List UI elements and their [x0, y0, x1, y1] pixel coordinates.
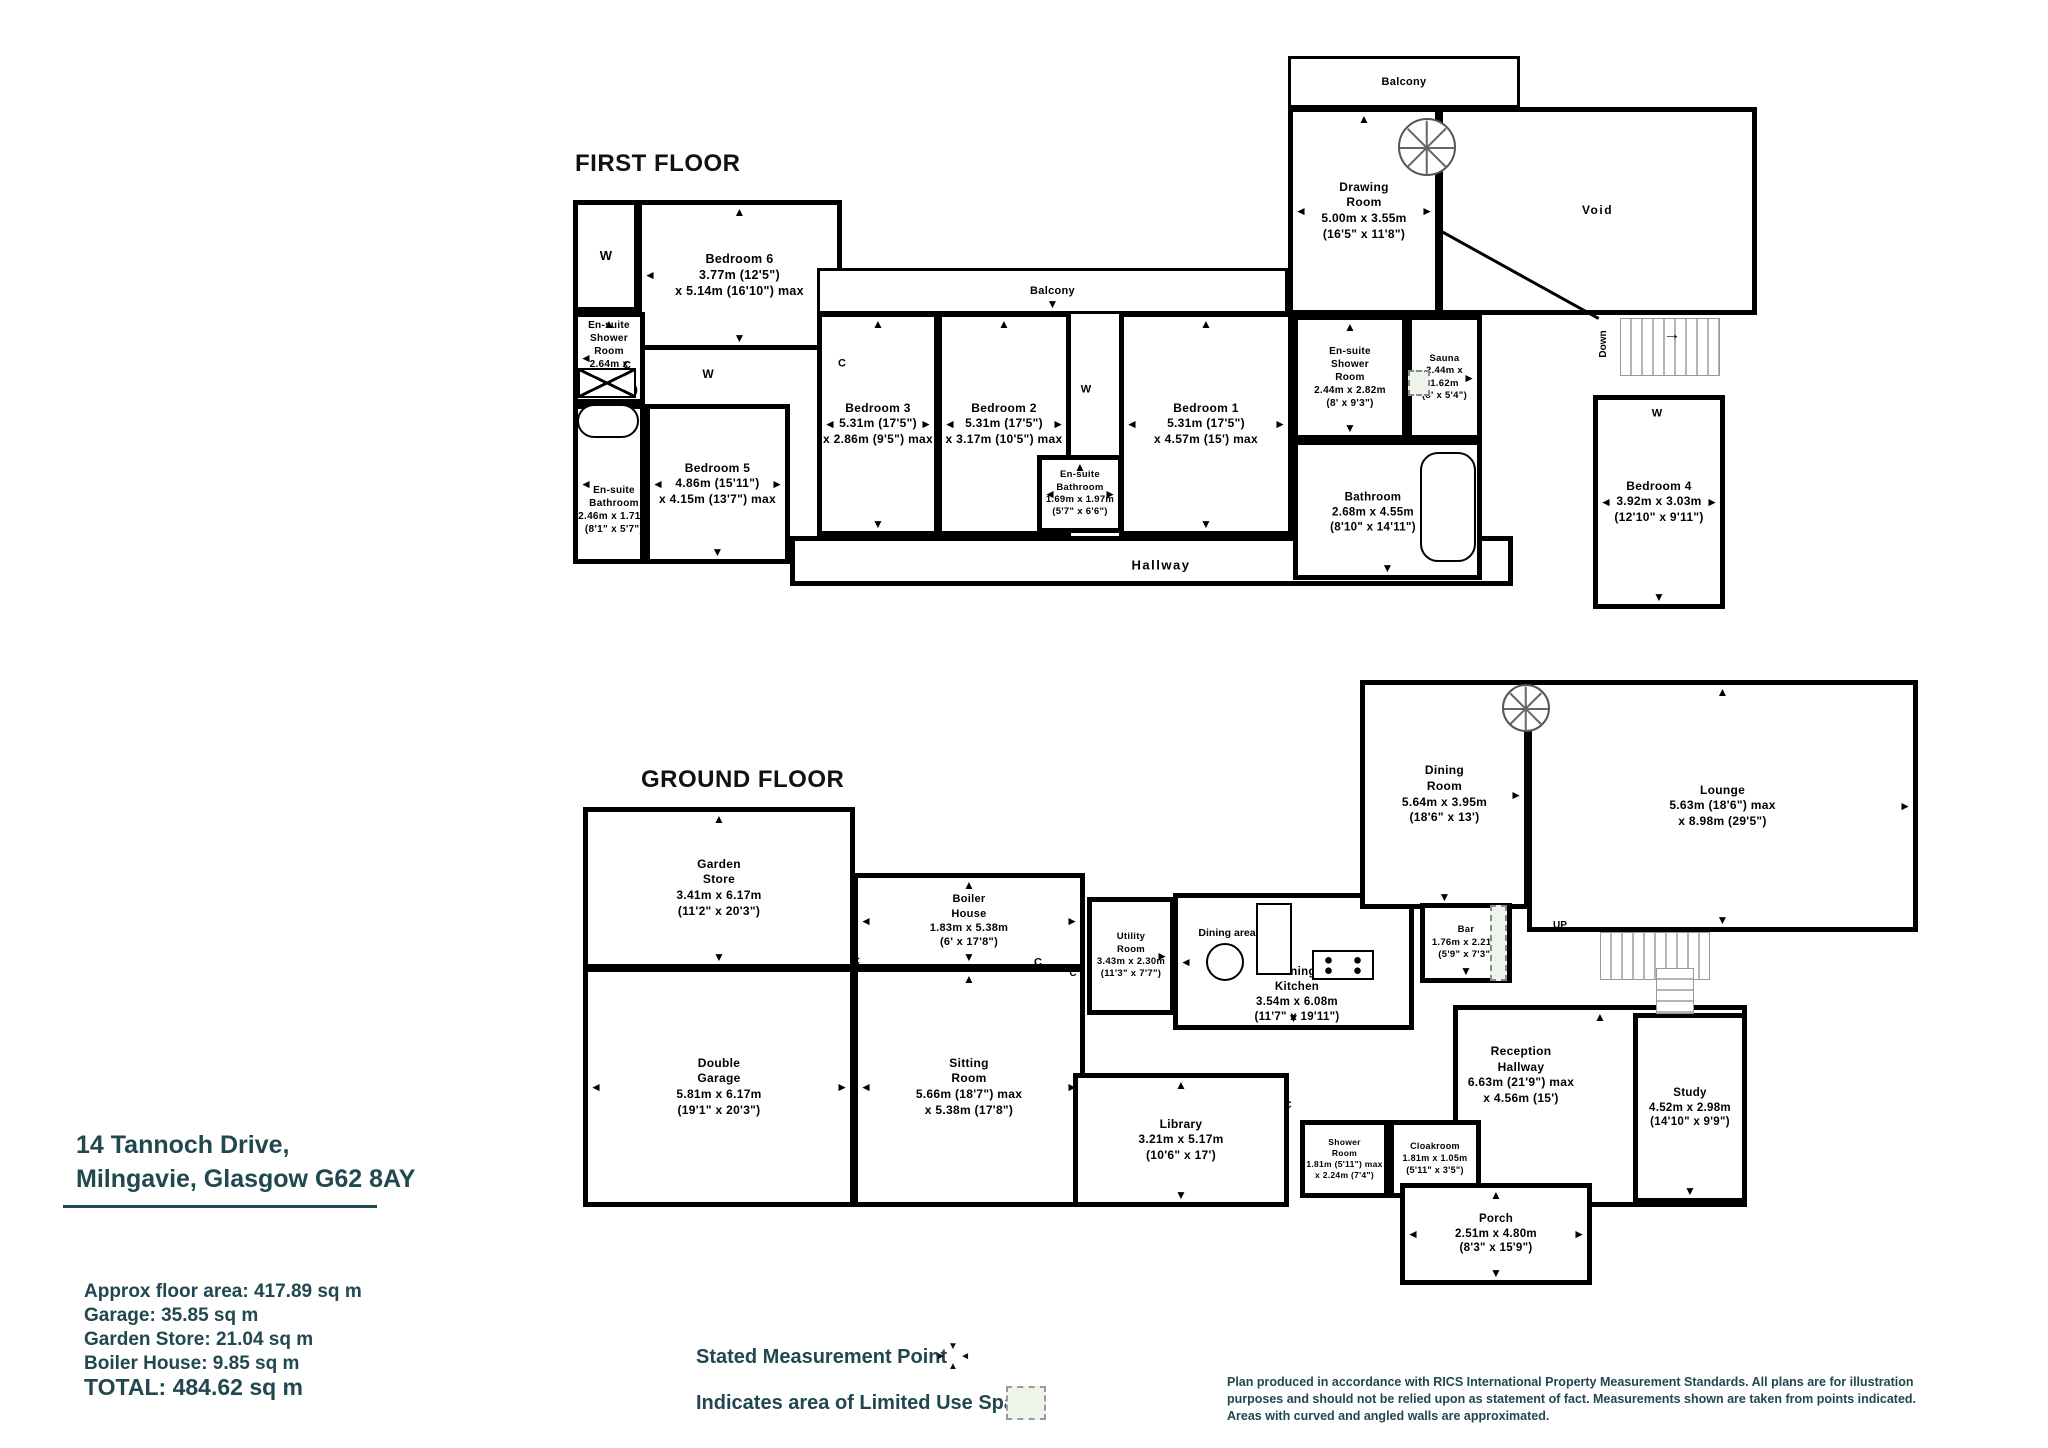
- room-ensuite-shower-room-ff-right-label: En-suiteShowerRoom2.44m x 2.82m(8' x 9'3…: [1314, 345, 1386, 410]
- limited-use-space-swatch: [1006, 1386, 1046, 1420]
- measurement-arrow-b-icon: ▼: [1200, 518, 1212, 530]
- measurement-arrow-t-icon: ▲: [998, 318, 1010, 330]
- measurement-arrow-b-icon: ▼: [712, 546, 724, 558]
- measurement-arrow-b-icon: ▼: [1684, 1185, 1696, 1197]
- measurement-arrow-l-icon: ◄: [1295, 205, 1307, 217]
- room-void-label: Void: [1582, 203, 1613, 219]
- total-area: TOTAL: 484.62 sq m: [84, 1374, 303, 1401]
- room-porch: Porch2.51m x 4.80m(8'3" x 15'9")◄►▲▼: [1400, 1183, 1592, 1285]
- measurement-arrow-r-icon: ►: [771, 478, 783, 490]
- measurement-arrow-l-icon: ◄: [652, 478, 664, 490]
- room-balcony-top: Balcony: [1288, 56, 1520, 108]
- measurement-arrow-l-icon: ◄: [580, 352, 592, 364]
- room-hallway-label: Hallway: [1132, 558, 1191, 575]
- measurement-arrow-t-icon: ▲: [1358, 113, 1370, 125]
- room-utility-room-label: UtilityRoom3.43m x 2.30m(11'3" x 7'7"): [1097, 931, 1165, 980]
- measurement-arrow-b-icon: ▼: [1653, 591, 1665, 603]
- measurement-arrow-l-icon: ◄: [580, 478, 592, 490]
- measurement-arrow-b-icon: ▼: [1439, 891, 1451, 903]
- label-c: C: [1284, 1101, 1291, 1111]
- measurement-arrow-r-icon: ►: [1573, 1228, 1585, 1240]
- measurement-arrow-l-icon: ◄: [860, 915, 872, 927]
- measurement-arrow-l-icon: ◄: [1180, 956, 1192, 968]
- arrow-right-icon: ►: [936, 1352, 946, 1362]
- measurement-arrow-r-icon: ►: [1052, 418, 1064, 430]
- approx-floor-area: Approx floor area: 417.89 sq m: [84, 1281, 362, 1303]
- measurement-arrow-r-icon: ►: [1274, 418, 1286, 430]
- room-garden-store-label: GardenStore3.41m x 6.17m(11'2" x 20'3"): [676, 857, 761, 919]
- measurement-arrow-r-icon: ►: [1510, 789, 1522, 801]
- room-bedroom-1-label: Bedroom 15.31m (17'5")x 4.57m (15') max: [1154, 401, 1258, 448]
- measurement-arrow-t-icon: ▲: [963, 973, 975, 985]
- room-boiler-house: BoilerHouse1.83m x 5.38m(6' x 17'8")◄►▲▼: [853, 873, 1085, 969]
- measurement-arrow-b-icon: ▼: [1047, 298, 1059, 310]
- hob-feature: [1312, 950, 1374, 980]
- arrow-down-icon: ▼: [948, 1342, 958, 1352]
- measurement-arrow-l-icon: ◄: [860, 1081, 872, 1093]
- measurement-arrow-l-icon: ◄: [944, 418, 956, 430]
- room-ensuite-bathroom-middle: En-suiteBathroom1.69m x 1.97m(5'7" x 6'6…: [1037, 455, 1123, 533]
- measurement-arrow-t-icon: ▲: [734, 206, 746, 218]
- measurement-arrow-b-icon: ▼: [1490, 1267, 1502, 1279]
- room-drawing-room-label: DrawingRoom5.00m x 3.55m(16'5" x 11'8"): [1321, 180, 1406, 242]
- room-double-garage-label: DoubleGarage5.81m x 6.17m(19'1" x 20'3"): [676, 1056, 761, 1118]
- measurement-arrow-l-icon: ◄: [590, 1081, 602, 1093]
- room-balcony-top-label: Balcony: [1382, 75, 1427, 89]
- room-bedroom-1: Bedroom 15.31m (17'5")x 4.57m (15') max◄…: [1119, 312, 1293, 536]
- measurement-arrow-r-icon: ►: [836, 1081, 848, 1093]
- measurement-arrow-r-icon: ►: [1706, 496, 1718, 508]
- room-balcony-middle: Balcony▼: [817, 268, 1288, 314]
- room-garden-store: GardenStore3.41m x 6.17m(11'2" x 20'3")▲…: [583, 807, 855, 969]
- property-address: 14 Tannoch Drive, Milngavie, Glasgow G62…: [76, 1128, 415, 1196]
- room-sitting-room: SittingRoom5.66m (18'7") maxx 5.38m (17'…: [853, 967, 1085, 1207]
- measurement-arrow-t-icon: ▲: [1594, 1011, 1606, 1023]
- room-bedroom-6: Bedroom 63.77m (12'5")x 5.14m (16'10") m…: [637, 200, 842, 350]
- label-c: C: [623, 361, 631, 372]
- arrow-left-icon: ◄: [960, 1352, 970, 1362]
- measurement-arrow-b-icon: ▼: [1288, 1012, 1300, 1024]
- first-floor-title: FIRST FLOOR: [575, 150, 740, 178]
- room-porch-label: Porch2.51m x 4.80m(8'3" x 15'9"): [1455, 1212, 1537, 1257]
- measurement-arrow-b-icon: ▼: [1382, 562, 1394, 574]
- room-study: Study4.52m x 2.98m(14'10" x 9'9")▼: [1633, 1013, 1747, 1203]
- measurement-arrow-l-icon: ◄: [1600, 496, 1612, 508]
- room-lounge: Lounge5.63m (18'6") maxx 8.98m (29'5")▲►…: [1527, 680, 1918, 932]
- spiral-feature: [1502, 684, 1550, 732]
- room-shower-room-gf: ShowerRoom1.81m (5'11") maxx 2.24m (7'4"…: [1300, 1120, 1389, 1198]
- measurement-arrow-b-icon: ▼: [1344, 422, 1356, 434]
- room-bedroom-2-label: Bedroom 25.31m (17'5")x 3.17m (10'5") ma…: [946, 401, 1063, 448]
- room-ensuite-shower-room-ff-right: En-suiteShowerRoom2.44m x 2.82m(8' x 9'3…: [1293, 315, 1407, 440]
- label-w: W: [702, 368, 713, 380]
- room-bedroom-3: Bedroom 35.31m (17'5")x 2.86m (9'5") max…: [817, 312, 939, 536]
- measurement-arrow-t-icon: ▲: [1074, 461, 1086, 473]
- measurement-arrow-r-icon: ►: [920, 418, 932, 430]
- room-bedroom-3-label: Bedroom 35.31m (17'5")x 2.86m (9'5") max: [823, 401, 933, 448]
- garden-store-area: Garden Store: 21.04 sq m: [84, 1329, 313, 1351]
- room-bedroom-6-label: Bedroom 63.77m (12'5")x 5.14m (16'10") m…: [675, 251, 804, 300]
- measurement-arrow-l-icon: ◄: [644, 269, 656, 281]
- room-wardrobe-ff: W: [573, 200, 639, 312]
- measurement-arrow-t-icon: ▲: [1490, 1189, 1502, 1201]
- dashed-feature: [1408, 370, 1430, 396]
- measurement-arrow-t-icon: ▲: [1175, 1079, 1187, 1091]
- measurement-arrow-b-icon: ▼: [713, 951, 725, 963]
- measurement-arrow-t-icon: ▲: [1200, 318, 1212, 330]
- room-cloakroom-label: Cloakroom1.81m x 1.05m(5'11" x 3'5"): [1403, 1141, 1468, 1176]
- measurement-arrow-r-icon: ►: [1104, 488, 1116, 500]
- room-reception-hallway-label: ReceptionHallway6.63m (21'9") maxx 4.56m…: [1468, 1044, 1574, 1106]
- measurement-arrow-b-icon: ▼: [1717, 914, 1729, 926]
- floorplan-page: FIRST FLOORWBedroom 63.77m (12'5")x 5.14…: [0, 0, 2048, 1448]
- dashed-feature: [1490, 905, 1507, 981]
- measurement-arrow-l-icon: ◄: [1407, 1228, 1419, 1240]
- measurement-point-icon: ► ◄ ▼ ▲: [936, 1342, 970, 1372]
- measurement-arrow-b-icon: ▼: [1460, 965, 1472, 977]
- label-w: W: [1652, 409, 1662, 420]
- room-lounge-label: Lounge5.63m (18'6") maxx 8.98m (29'5"): [1669, 783, 1775, 830]
- address-underline: [63, 1205, 377, 1208]
- disclaimer-text: Plan produced in accordance with RICS In…: [1227, 1374, 2017, 1425]
- measurement-arrow-t-icon: ▲: [713, 813, 725, 825]
- room-shower-room-gf-label: ShowerRoom1.81m (5'11") maxx 2.24m (7'4"…: [1306, 1137, 1382, 1181]
- label-c: C: [1069, 969, 1076, 979]
- measurement-arrow-t-icon: ▲: [1717, 686, 1729, 698]
- legend-limited-use-label: Indicates area of Limited Use Space: [696, 1392, 1037, 1415]
- legend-measurement-point-label: Stated Measurement Point: [696, 1346, 947, 1369]
- boiler-house-area: Boiler House: 9.85 sq m: [84, 1353, 299, 1375]
- room-double-garage: DoubleGarage5.81m x 6.17m(19'1" x 20'3")…: [583, 967, 855, 1207]
- room-void: Void: [1438, 107, 1757, 315]
- room-bedroom-4-label: Bedroom 43.92m x 3.03m(12'10" x 9'11"): [1614, 479, 1703, 526]
- measurement-arrow-l-icon: ◄: [1126, 418, 1138, 430]
- room-utility-room: UtilityRoom3.43m x 2.30m(11'3" x 7'7")►: [1087, 897, 1175, 1015]
- room-bathroom-ff-label: Bathroom2.68m x 4.55m(8'10" x 14'11"): [1330, 491, 1416, 536]
- label-down: Down: [1599, 330, 1609, 357]
- measurement-arrow-t-icon: ▲: [603, 318, 615, 330]
- room-study-label: Study4.52m x 2.98m(14'10" x 9'9"): [1649, 1086, 1731, 1131]
- measurement-arrow-b-icon: ▼: [963, 951, 975, 963]
- room-bedroom-5: Bedroom 54.86m (15'11")x 4.15m (13'7") m…: [645, 404, 790, 564]
- stairs-v-feature: [1656, 968, 1694, 1014]
- room-dining-room-label: DiningRoom5.64m x 3.95m(18'6" x 13'): [1402, 763, 1487, 825]
- label-w: W: [1081, 385, 1091, 396]
- room-bedroom-4: Bedroom 43.92m x 3.03m(12'10" x 9'11")◄►…: [1593, 395, 1725, 609]
- counter-feature: [1256, 903, 1292, 975]
- label-c: C: [1034, 958, 1042, 969]
- room-library-label: Library3.21m x 5.17m(10'6" x 17'): [1138, 1117, 1223, 1164]
- label--: →: [1664, 326, 1681, 343]
- room-balcony-middle-label: Balcony: [1030, 284, 1075, 298]
- measurement-arrow-r-icon: ►: [1066, 915, 1078, 927]
- bath-feature: [577, 404, 639, 438]
- room-sitting-room-label: SittingRoom5.66m (18'7") maxx 5.38m (17'…: [916, 1056, 1022, 1118]
- measurement-arrow-l-icon: ◄: [824, 418, 836, 430]
- measurement-arrow-r-icon: ►: [1421, 205, 1433, 217]
- spiral-feature: [1398, 118, 1456, 176]
- label-c: C: [852, 957, 860, 968]
- label-c: C: [838, 359, 846, 370]
- ground-floor-title: GROUND FLOOR: [641, 766, 844, 794]
- room-wardrobe-ff-label: W: [600, 248, 613, 265]
- measurement-arrow-b-icon: ▼: [1175, 1189, 1187, 1201]
- bath-feature: [1420, 452, 1476, 562]
- measurement-arrow-l-icon: ◄: [1044, 488, 1056, 500]
- measurement-arrow-r-icon: ►: [1156, 950, 1168, 962]
- measurement-arrow-t-icon: ▲: [1344, 321, 1356, 333]
- measurement-arrow-t-icon: ▲: [872, 318, 884, 330]
- measurement-arrow-r-icon: ►: [1463, 372, 1475, 384]
- room-bedroom-5-label: Bedroom 54.86m (15'11")x 4.15m (13'7") m…: [659, 461, 776, 508]
- room-library: Library3.21m x 5.17m(10'6" x 17')▲▼: [1073, 1073, 1289, 1207]
- measurement-arrow-b-icon: ▼: [734, 332, 746, 344]
- tray-feature: [578, 368, 636, 398]
- label-dining-area: Dining area: [1198, 928, 1255, 939]
- measurement-arrow-t-icon: ▲: [963, 879, 975, 891]
- measurement-arrow-b-icon: ▼: [872, 518, 884, 530]
- room-ensuite-bathroom-ff-label: En-suiteBathroom2.46m x 1.71m(8'1" x 5'7…: [578, 484, 650, 536]
- label-up: UP: [1553, 921, 1567, 931]
- circle-feature: [1206, 943, 1244, 981]
- measurement-arrow-r-icon: ►: [1899, 800, 1911, 812]
- garage-area: Garage: 35.85 sq m: [84, 1305, 258, 1327]
- arrow-up-icon: ▲: [948, 1362, 958, 1372]
- room-boiler-house-label: BoilerHouse1.83m x 5.38m(6' x 17'8"): [930, 892, 1009, 949]
